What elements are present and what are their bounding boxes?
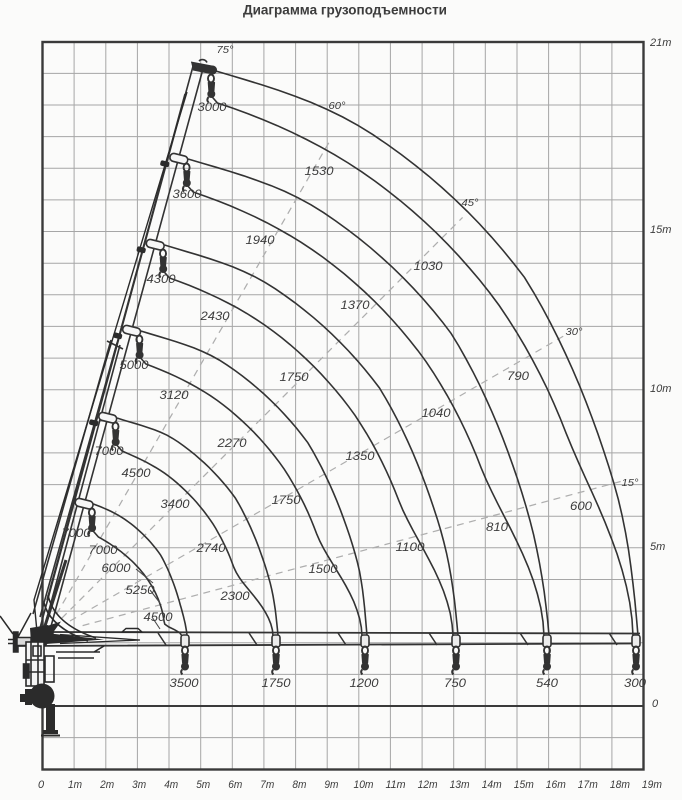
svg-text:5m: 5m: [650, 541, 665, 553]
svg-text:1750: 1750: [262, 678, 292, 690]
svg-text:7000: 7000: [89, 543, 118, 557]
svg-text:810: 810: [486, 520, 508, 534]
svg-text:3000: 3000: [198, 100, 227, 114]
svg-text:8m: 8m: [292, 779, 306, 791]
svg-text:750: 750: [444, 678, 467, 690]
svg-text:1030: 1030: [414, 259, 443, 273]
svg-text:1750: 1750: [272, 493, 301, 507]
svg-text:17m: 17m: [578, 779, 598, 791]
svg-text:1100: 1100: [396, 540, 425, 554]
svg-text:2270: 2270: [216, 436, 246, 450]
svg-text:3m: 3m: [132, 779, 146, 791]
svg-text:2m: 2m: [99, 779, 114, 791]
svg-text:4300: 4300: [147, 272, 176, 286]
svg-text:4m: 4m: [164, 779, 178, 791]
svg-text:12m: 12m: [418, 779, 438, 791]
svg-text:2430: 2430: [199, 309, 229, 323]
svg-text:60°: 60°: [329, 100, 346, 112]
svg-text:30°: 30°: [566, 326, 583, 338]
svg-text:75°: 75°: [217, 44, 234, 56]
svg-text:10m: 10m: [650, 383, 671, 395]
svg-text:1530: 1530: [305, 164, 334, 178]
svg-text:9m: 9m: [324, 779, 338, 791]
svg-text:1370: 1370: [341, 298, 370, 312]
svg-text:19m: 19m: [642, 779, 662, 791]
svg-text:18m: 18m: [610, 779, 630, 791]
svg-text:45°: 45°: [462, 197, 479, 209]
svg-text:3500: 3500: [170, 678, 200, 690]
svg-text:15m: 15m: [514, 779, 534, 791]
svg-text:6000: 6000: [102, 561, 131, 575]
svg-text:15°: 15°: [622, 477, 639, 489]
svg-text:21m: 21m: [649, 37, 671, 49]
svg-text:7m: 7m: [260, 779, 274, 791]
svg-text:0: 0: [652, 698, 659, 710]
svg-text:540: 540: [536, 678, 559, 690]
svg-text:1940: 1940: [246, 233, 275, 247]
svg-text:4500: 4500: [122, 466, 151, 480]
svg-text:2740: 2740: [195, 541, 225, 555]
svg-text:3600: 3600: [173, 187, 202, 201]
svg-text:7000: 7000: [62, 526, 91, 540]
svg-text:15m: 15m: [650, 224, 671, 236]
svg-text:7000: 7000: [95, 444, 124, 458]
svg-text:6m: 6m: [228, 779, 242, 791]
svg-text:Диаграмма грузоподъемности: Диаграмма грузоподъемности: [243, 3, 447, 18]
svg-text:790: 790: [507, 369, 529, 383]
svg-text:11m: 11m: [386, 779, 406, 791]
svg-text:1m: 1m: [68, 779, 82, 791]
svg-text:600: 600: [570, 499, 592, 513]
svg-text:10m: 10m: [354, 779, 374, 791]
svg-text:5m: 5m: [196, 779, 210, 791]
svg-text:1200: 1200: [350, 678, 380, 690]
svg-text:1040: 1040: [422, 406, 451, 420]
svg-text:300: 300: [624, 678, 647, 690]
svg-text:13m: 13m: [450, 779, 470, 791]
svg-text:2300: 2300: [219, 589, 249, 603]
svg-text:16m: 16m: [546, 779, 566, 791]
svg-text:1500: 1500: [309, 562, 338, 576]
svg-text:1350: 1350: [346, 449, 375, 463]
svg-text:3400: 3400: [161, 497, 190, 511]
svg-text:4500: 4500: [144, 610, 173, 624]
svg-text:0: 0: [38, 779, 45, 791]
svg-text:1750: 1750: [280, 370, 309, 384]
svg-text:3120: 3120: [160, 388, 189, 402]
svg-text:5000: 5000: [120, 358, 149, 372]
svg-text:5250: 5250: [126, 583, 155, 597]
svg-text:14m: 14m: [482, 779, 502, 791]
